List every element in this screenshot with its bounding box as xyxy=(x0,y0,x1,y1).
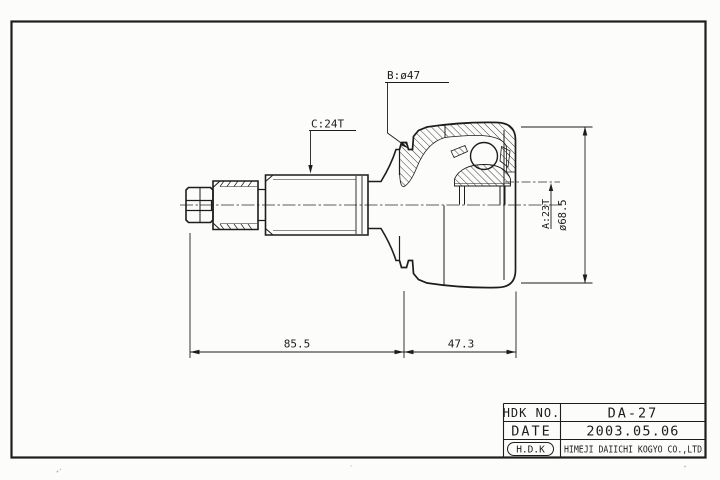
flare-bottom xyxy=(368,229,400,261)
part-no-label: HDK NO. xyxy=(503,406,561,420)
scan-artifacts xyxy=(57,465,686,472)
arrow-mid-left xyxy=(395,350,405,355)
sheet-border xyxy=(12,22,706,458)
dim-lengths: 85.5 47.3 xyxy=(190,233,516,358)
cage-section-left xyxy=(451,146,468,158)
inner-race-section xyxy=(455,165,511,187)
maker-name: HIMEJI DAIICHI KOGYO CO.,LTD xyxy=(564,445,702,456)
callout-c-label: C:24T xyxy=(311,118,344,131)
arrow-right-out xyxy=(507,350,517,355)
flange-section-hatch xyxy=(400,125,446,186)
dim-arrow-up xyxy=(583,127,588,136)
bell-section xyxy=(400,122,516,284)
callout-a-label: A:23T xyxy=(541,199,552,229)
callout-c: C:24T xyxy=(308,118,356,174)
title-block: HDK NO. DA-27 DATE 2003.05.06 H.D.K HIME… xyxy=(503,404,706,458)
callout-a: A:23T xyxy=(541,183,553,229)
dim-housing-dia-text: ø68.5 xyxy=(557,199,569,231)
cotter-slot xyxy=(186,201,212,211)
arrow-mid-right xyxy=(404,350,414,355)
callout-b-label: B:ø47 xyxy=(387,69,420,82)
dim-stem-length-text: 85.5 xyxy=(284,338,311,351)
hdk-logo-text: H.D.K xyxy=(516,445,545,456)
callout-c-arrowhead xyxy=(308,165,312,174)
drawing-sheet: B:ø47 C:24T A:23T ø68.5 85.5 47.3 xyxy=(0,0,720,480)
date-value: 2003.05.06 xyxy=(586,424,679,440)
dim-arrow-down xyxy=(583,275,588,284)
part-no-value: DA-27 xyxy=(608,406,659,422)
cv-joint-drawing-canvas: B:ø47 C:24T A:23T ø68.5 85.5 47.3 xyxy=(0,0,720,480)
dim-housing-length-text: 47.3 xyxy=(448,338,475,351)
bore-spline-lines xyxy=(460,186,506,205)
flare-top xyxy=(368,150,400,182)
date-label: DATE xyxy=(511,424,552,440)
callout-a-arrowhead xyxy=(549,183,553,191)
callout-b-leader xyxy=(388,83,407,147)
arrow-left-out xyxy=(190,350,200,355)
